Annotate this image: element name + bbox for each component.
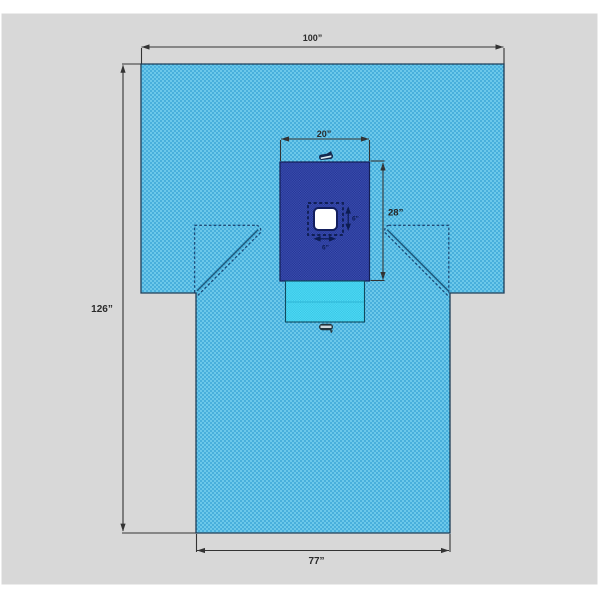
svg-text:20”: 20” [317,129,332,139]
svg-text:6”: 6” [352,216,359,223]
svg-text:77”: 77” [308,556,324,567]
svg-text:6”: 6” [322,245,329,252]
svg-text:28”: 28” [388,208,404,219]
svg-text:100”: 100” [303,33,323,43]
svg-text:126”: 126” [91,304,113,315]
